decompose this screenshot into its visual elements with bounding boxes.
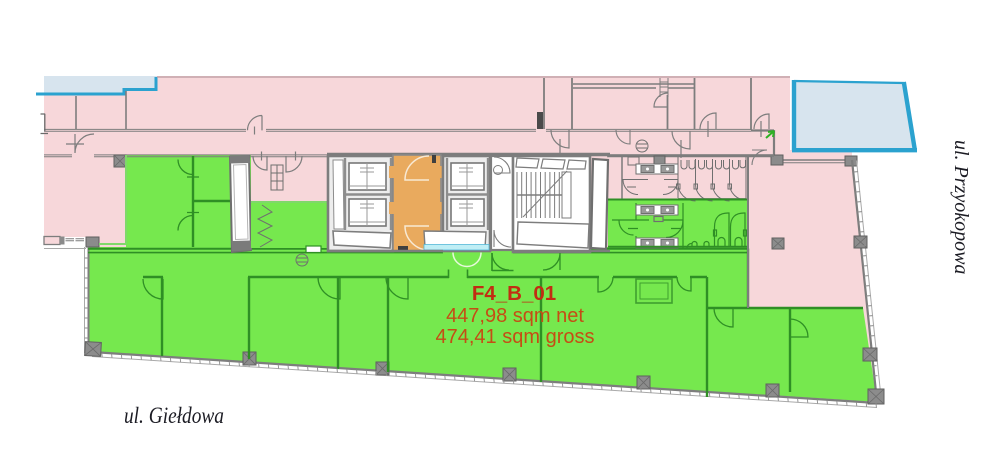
svg-text:447,98 sqm net: 447,98 sqm net (446, 305, 584, 327)
svg-text:ul. Giełdowa: ul. Giełdowa (124, 403, 224, 428)
svg-text:ul. Przyokopowa: ul. Przyokopowa (950, 140, 972, 274)
svg-text:474,41 sqm gross: 474,41 sqm gross (436, 326, 595, 348)
svg-text:F4_B_01: F4_B_01 (472, 282, 556, 305)
